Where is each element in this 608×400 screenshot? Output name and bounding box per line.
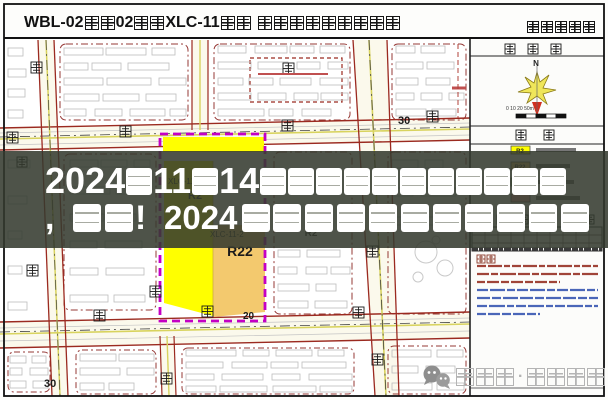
svg-text:0 10 20 50m: 0 10 20 50m bbox=[506, 106, 534, 112]
svg-text:20: 20 bbox=[243, 311, 255, 322]
svg-text:30: 30 bbox=[44, 378, 56, 390]
svg-text:N: N bbox=[533, 59, 539, 68]
svg-text:30: 30 bbox=[398, 115, 410, 127]
